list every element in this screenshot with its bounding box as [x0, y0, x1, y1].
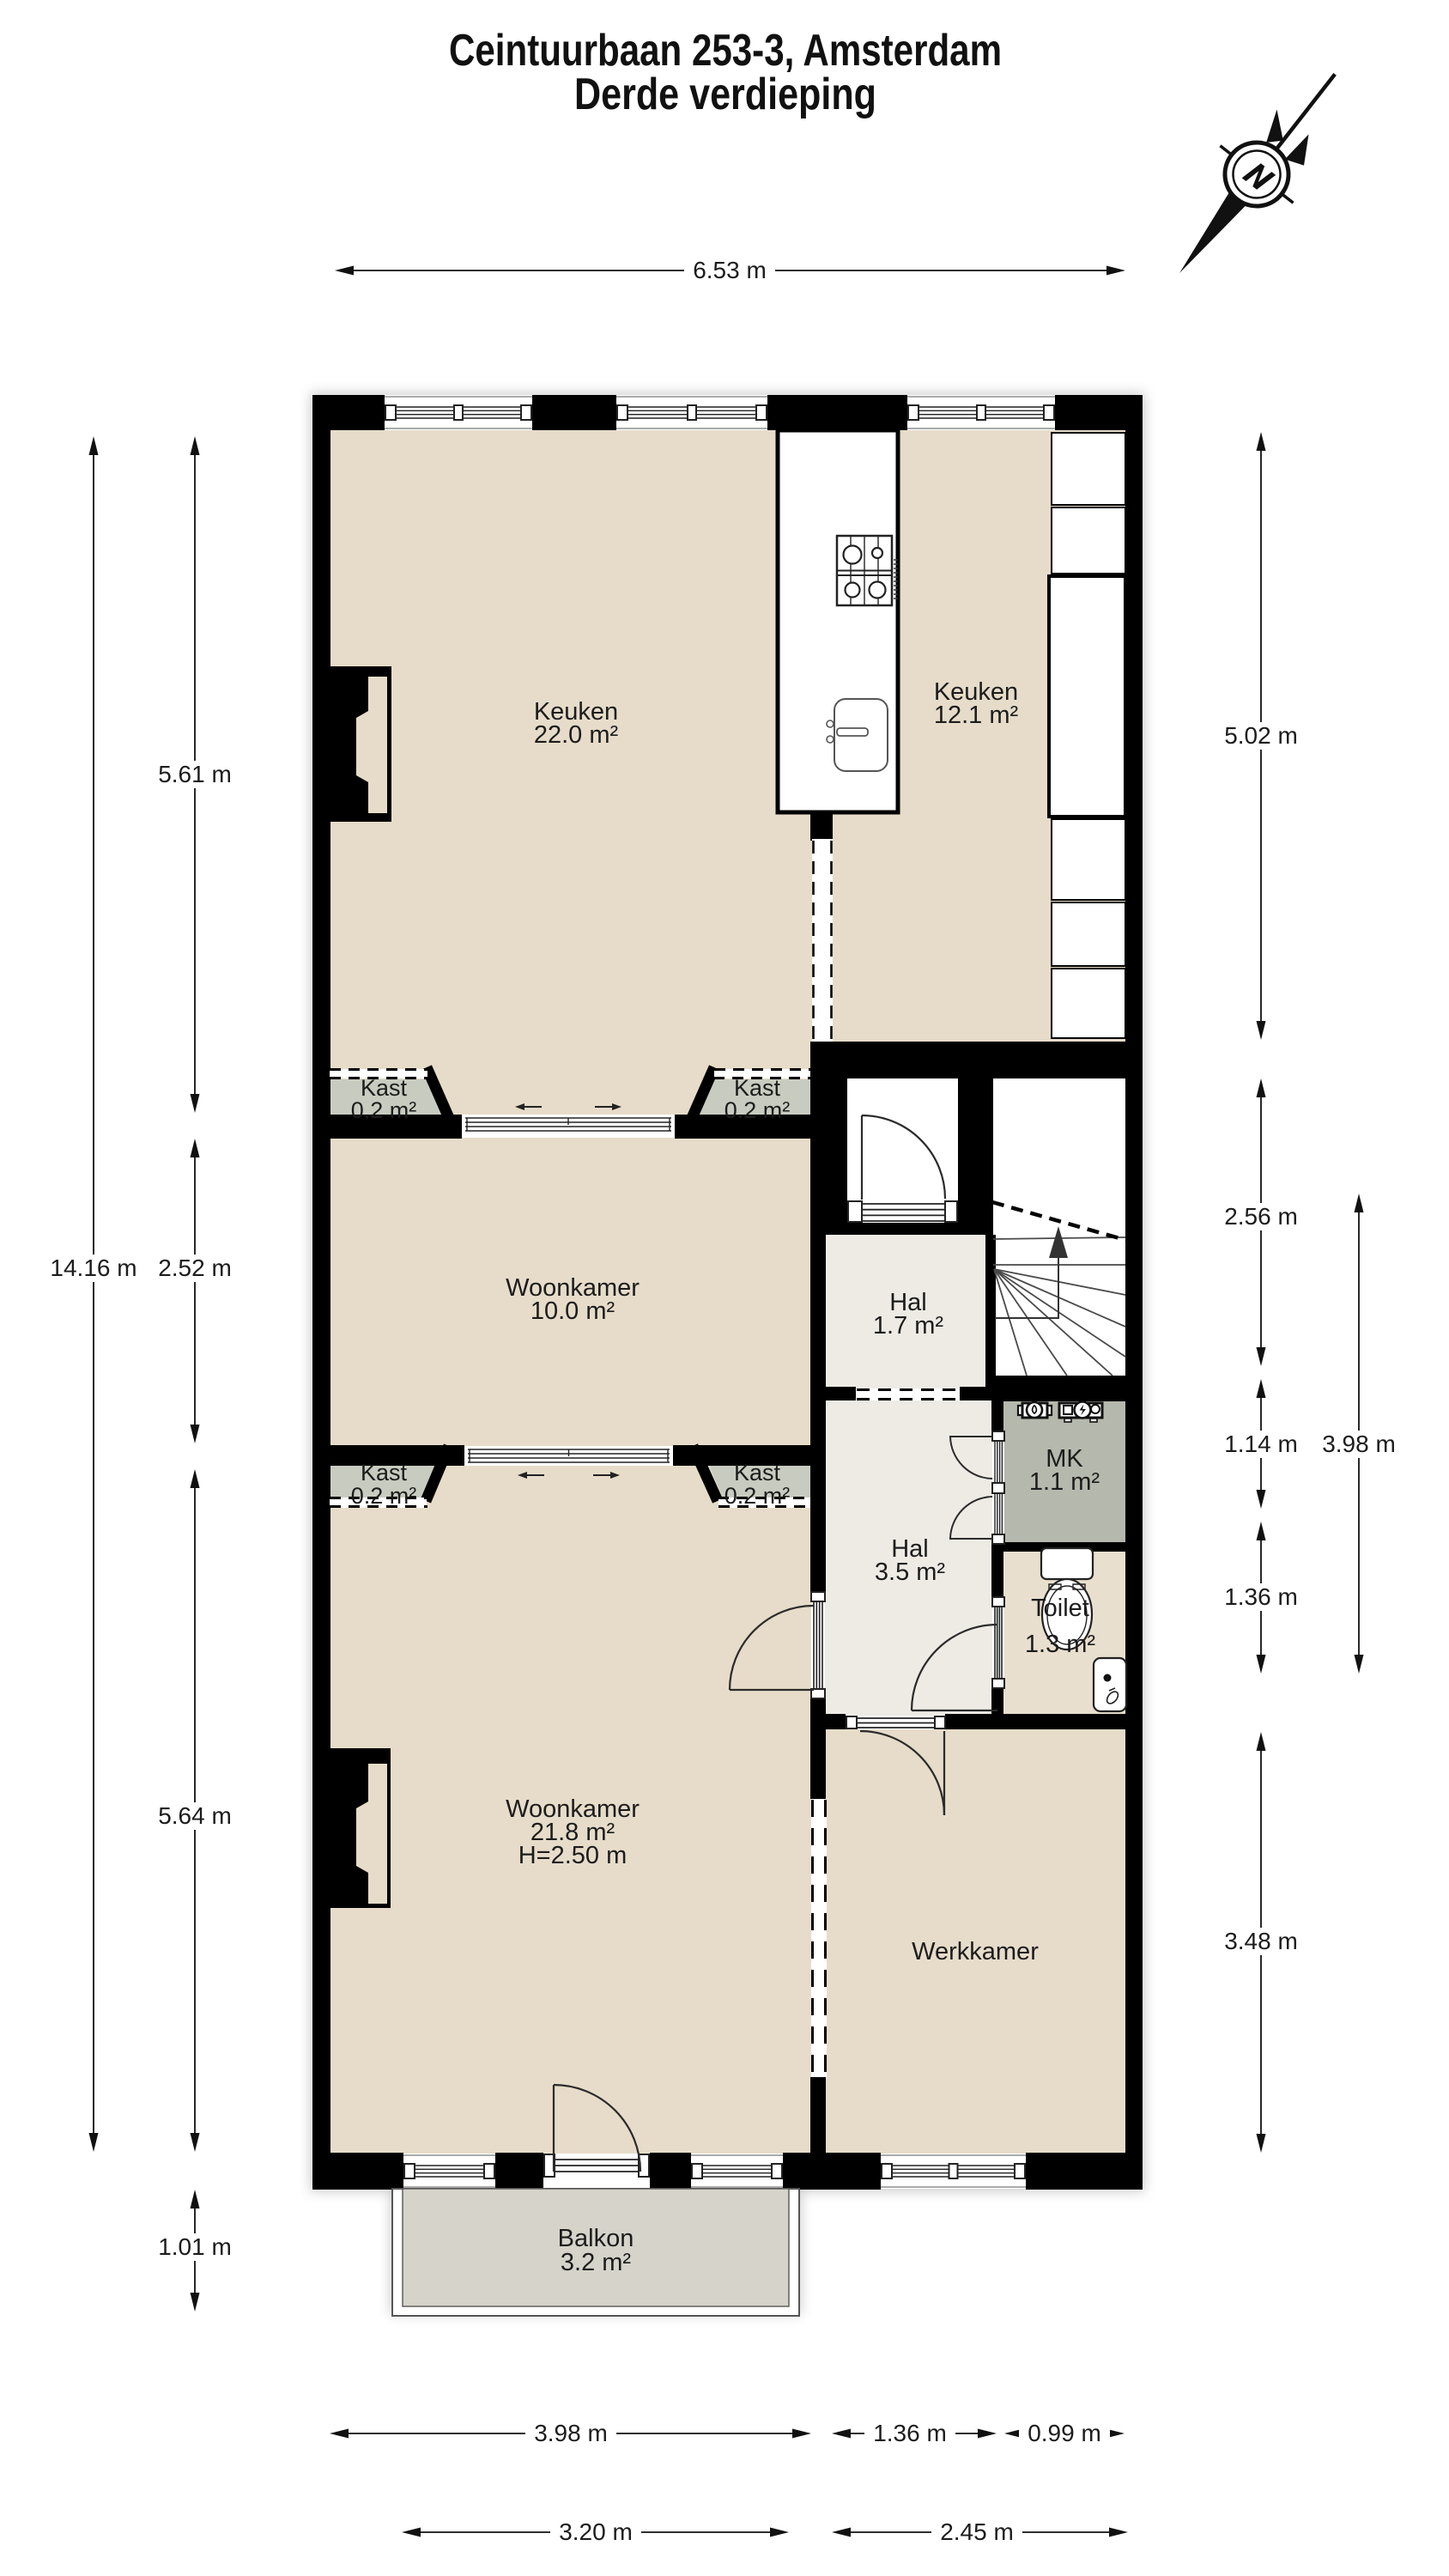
svg-text:1.36 m: 1.36 m — [873, 2420, 947, 2446]
svg-text:1.7 m²: 1.7 m² — [873, 1312, 944, 1340]
svg-text:0.2 m²: 0.2 m² — [724, 1483, 791, 1509]
svg-text:3.5 m²: 3.5 m² — [875, 1558, 946, 1586]
svg-text:0.99 m: 0.99 m — [1028, 2420, 1101, 2446]
svg-text:0.2 m²: 0.2 m² — [351, 1483, 417, 1509]
svg-text:1.36 m: 1.36 m — [1224, 1583, 1298, 1610]
svg-text:Derde verdieping: Derde verdieping — [574, 70, 876, 119]
svg-text:Werkkamer: Werkkamer — [912, 1938, 1039, 1965]
svg-text:1.3 m²: 1.3 m² — [1025, 1631, 1096, 1658]
svg-text:2.52 m: 2.52 m — [158, 1255, 232, 1281]
svg-text:5.02 m: 5.02 m — [1224, 722, 1298, 749]
svg-text:Ceintuurbaan 253-3, Amsterdam: Ceintuurbaan 253-3, Amsterdam — [449, 26, 1002, 76]
svg-text:22.0 m²: 22.0 m² — [534, 721, 619, 749]
svg-text:1.01 m: 1.01 m — [158, 2233, 232, 2260]
svg-text:3.20 m: 3.20 m — [559, 2518, 633, 2545]
svg-text:2.45 m: 2.45 m — [940, 2518, 1014, 2545]
svg-text:5.61 m: 5.61 m — [158, 761, 232, 787]
svg-text:1.1 m²: 1.1 m² — [1029, 1468, 1100, 1496]
svg-text:6.53 m: 6.53 m — [693, 257, 767, 283]
svg-text:2.56 m: 2.56 m — [1224, 1203, 1298, 1230]
svg-text:10.0 m²: 10.0 m² — [530, 1297, 615, 1325]
svg-text:3.98 m: 3.98 m — [534, 2420, 608, 2446]
svg-text:3.2 m²: 3.2 m² — [561, 2249, 632, 2276]
svg-text:14.16 m: 14.16 m — [50, 1255, 136, 1281]
svg-text:0.2 m²: 0.2 m² — [724, 1097, 791, 1123]
svg-text:Kast: Kast — [361, 1460, 408, 1485]
svg-text:5.64 m: 5.64 m — [158, 1802, 232, 1829]
svg-text:3.48 m: 3.48 m — [1224, 1928, 1298, 1954]
svg-text:1.14 m: 1.14 m — [1224, 1431, 1298, 1457]
svg-text:H=2.50 m: H=2.50 m — [518, 1842, 627, 1869]
svg-text:Kast: Kast — [734, 1460, 781, 1485]
svg-text:0.2 m²: 0.2 m² — [351, 1097, 417, 1123]
svg-text:Toilet: Toilet — [1031, 1595, 1089, 1622]
svg-text:12.1 m²: 12.1 m² — [934, 702, 1019, 729]
svg-text:3.98 m: 3.98 m — [1322, 1431, 1396, 1457]
